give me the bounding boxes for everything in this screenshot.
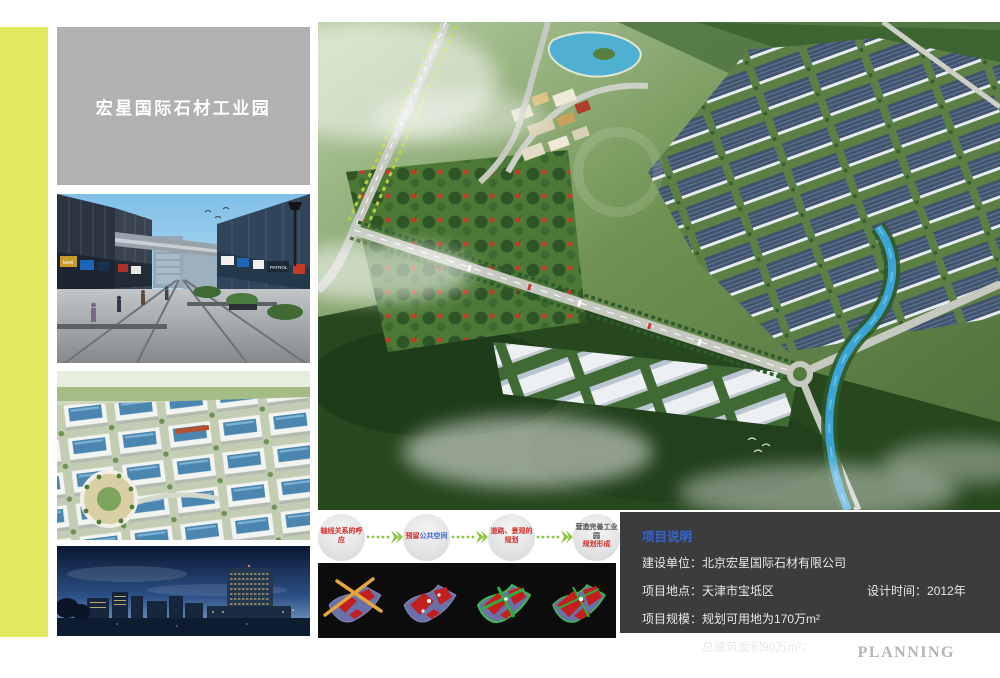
aerial-view-rendering bbox=[57, 371, 310, 540]
shop-sign-text: PATROL bbox=[270, 265, 288, 270]
row-value: 天津市宝坻区 bbox=[702, 584, 774, 598]
row-value: 北京宏星国际石材有限公司 bbox=[702, 556, 846, 570]
master-plan-rendering bbox=[318, 22, 1000, 510]
concept-diagram-4 bbox=[547, 571, 611, 631]
design-time: 设计时间：2012年 bbox=[867, 582, 966, 599]
accent-stripe bbox=[0, 27, 48, 637]
flow-step-1: 轴线关系的呼应 bbox=[318, 514, 365, 561]
planning-watermark: PLANNING bbox=[858, 644, 955, 662]
street-view-rendering: lavei PATROL bbox=[57, 194, 310, 363]
concept-flow-diagram: 轴线关系的呼应 预留公共空间 道路、景观的规划 营造完善工业园 规划形成 bbox=[318, 512, 616, 562]
title-box: 宏星国际石材工业园 bbox=[57, 27, 310, 185]
project-row-location: 项目地点：天津市宝坻区 设计时间：2012年 bbox=[642, 582, 1000, 599]
concept-diagrams-panel bbox=[318, 563, 616, 638]
project-row-scale: 项目规模：规划可用地为170万m² bbox=[642, 610, 1000, 627]
row-value: 总建筑面积90万m²； bbox=[702, 640, 813, 654]
project-row-builder: 建设单位：北京宏星国际石材有限公司 bbox=[642, 554, 1000, 571]
night-illustration bbox=[57, 546, 310, 636]
shop-sign-text: lavei bbox=[63, 260, 73, 266]
design-time-label: 设计时间： bbox=[867, 584, 927, 598]
presentation-board: 宏星国际石材工业园 lavei bbox=[0, 0, 1000, 678]
project-description-panel: 项目说明 建设单位：北京宏星国际石材有限公司 项目地点：天津市宝坻区 设计时间：… bbox=[620, 512, 1000, 633]
aerial-illustration bbox=[57, 371, 310, 540]
flow-arrow-icon bbox=[365, 529, 403, 545]
street-view-illustration: lavei PATROL bbox=[57, 194, 310, 363]
night-view-rendering bbox=[57, 546, 310, 636]
page-title: 宏星国际石材工业园 bbox=[96, 94, 272, 119]
flow-step-4: 营造完善工业园 规划形成 bbox=[573, 514, 620, 561]
row-value: 规划可用地为170万m² bbox=[702, 612, 820, 626]
project-description-heading: 项目说明 bbox=[642, 526, 1000, 545]
flow-arrow-icon bbox=[535, 529, 573, 545]
flow-arrow-icon bbox=[450, 529, 488, 545]
concept-diagram-3 bbox=[472, 571, 536, 631]
row-label: 项目规模： bbox=[642, 610, 702, 627]
concept-diagram-2 bbox=[398, 571, 462, 631]
flow-step-3-label: 道路、景观的规划 bbox=[488, 528, 535, 546]
row-label: 建设单位： bbox=[642, 554, 702, 571]
flow-step-4-line2: 规划形成 bbox=[583, 541, 611, 550]
flow-step-2: 预留公共空间 bbox=[403, 514, 450, 561]
flow-step-4-line1: 营造完善工业园 bbox=[573, 524, 620, 542]
row-label: 项目地点： bbox=[642, 582, 702, 599]
concept-diagram-1 bbox=[323, 571, 387, 631]
flow-step-3: 道路、景观的规划 bbox=[488, 514, 535, 561]
flow-step-2-highlight: 公共空间 bbox=[420, 533, 448, 540]
flow-step-1-label: 轴线关系的呼应 bbox=[318, 528, 365, 546]
design-time-value: 2012年 bbox=[927, 584, 966, 598]
flow-step-2-label: 预留 bbox=[406, 533, 420, 540]
master-plan-illustration bbox=[318, 22, 1000, 510]
